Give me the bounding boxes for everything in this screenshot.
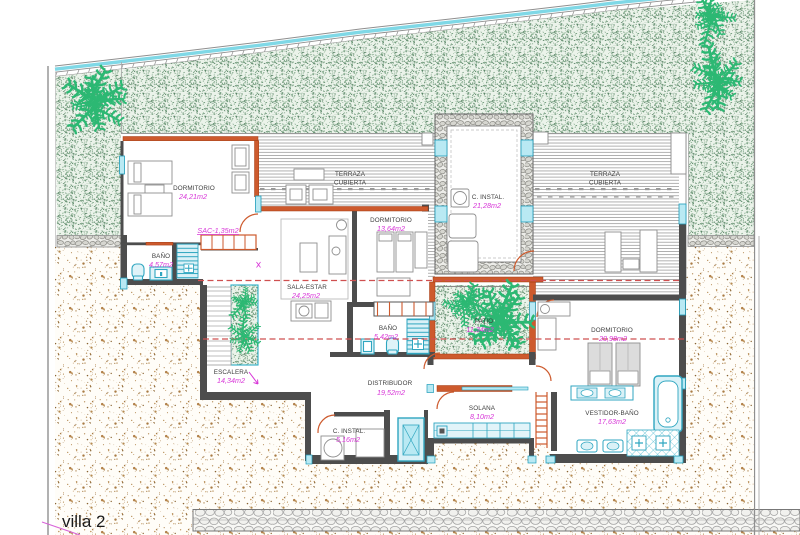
svg-text:5,16m2: 5,16m2 — [336, 435, 360, 444]
svg-text:SALA-ESTAR: SALA-ESTAR — [287, 284, 327, 291]
svg-text:CUBIERTA: CUBIERTA — [334, 180, 367, 187]
svg-text:4,57m2: 4,57m2 — [149, 260, 173, 269]
svg-text:24,21m2: 24,21m2 — [178, 192, 207, 201]
svg-text:14,34m2: 14,34m2 — [217, 376, 245, 385]
svg-text:DORMITORIO: DORMITORIO — [370, 217, 412, 224]
svg-text:villa 2: villa 2 — [62, 512, 105, 531]
svg-text:ESCALERA: ESCALERA — [214, 369, 249, 376]
svg-text:20,98m2: 20,98m2 — [598, 334, 627, 343]
svg-text:TERRAZA: TERRAZA — [335, 171, 366, 178]
svg-text:BAÑO: BAÑO — [379, 323, 397, 332]
svg-text:C. INSTAL.: C. INSTAL. — [472, 194, 505, 201]
svg-text:CUBIERTA: CUBIERTA — [589, 180, 622, 187]
svg-text:DORMITORIO: DORMITORIO — [173, 185, 215, 192]
svg-text:SAC-1,35m2: SAC-1,35m2 — [197, 226, 238, 235]
svg-text:SOLANA: SOLANA — [469, 405, 496, 412]
svg-text:11,34m2: 11,34m2 — [466, 325, 493, 334]
svg-text:BAÑO: BAÑO — [152, 251, 170, 260]
svg-text:PATIO: PATIO — [475, 318, 493, 325]
svg-text:17,63m2: 17,63m2 — [598, 417, 626, 426]
svg-text:TERRAZA: TERRAZA — [590, 171, 621, 178]
svg-text:13,64m2: 13,64m2 — [377, 224, 405, 233]
svg-text:C. INSTAL.: C. INSTAL. — [333, 428, 366, 435]
svg-text:DORMITORIO: DORMITORIO — [591, 327, 633, 334]
svg-text:21,28m2: 21,28m2 — [472, 201, 501, 210]
svg-text:24,25m2: 24,25m2 — [291, 291, 320, 300]
svg-text:VESTIDOR-BAÑO: VESTIDOR-BAÑO — [585, 408, 638, 417]
svg-text:5,42m2: 5,42m2 — [374, 332, 398, 341]
svg-text:19,52m2: 19,52m2 — [377, 388, 405, 397]
svg-text:8,10m2: 8,10m2 — [470, 412, 494, 421]
svg-text:DISTRIBUDOR: DISTRIBUDOR — [368, 380, 413, 387]
